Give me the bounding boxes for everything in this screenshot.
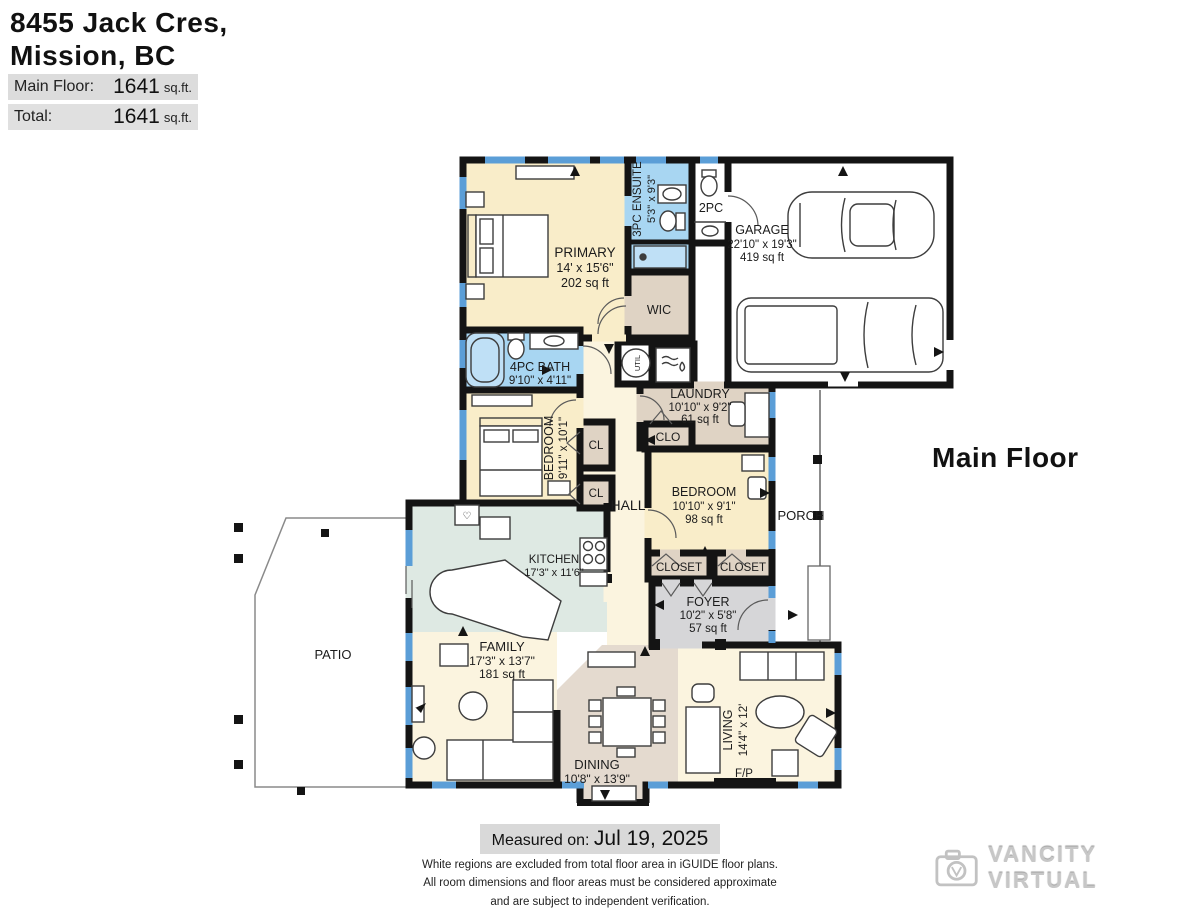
washer-icon — [656, 348, 690, 382]
coffee-table-icon — [756, 696, 804, 728]
svg-text:17'3" x 11'6": 17'3" x 11'6" — [524, 567, 584, 579]
armchair-icon — [772, 750, 798, 776]
disclaimer-line: and are subject to independent verificat… — [0, 893, 1200, 911]
svg-text:57 sq ft: 57 sq ft — [689, 623, 728, 635]
label-clo: CLO — [656, 430, 681, 444]
sofa-living-icon — [740, 652, 824, 680]
side-table-icon — [548, 481, 570, 495]
measured-date: Jul 19, 2025 — [594, 827, 708, 850]
svg-text:10'2" x 5'8": 10'2" x 5'8" — [680, 610, 737, 622]
svg-text:181 sq ft: 181 sq ft — [479, 667, 526, 681]
label-primary: PRIMARY — [554, 245, 615, 260]
svg-text:9'10" x 4'11": 9'10" x 4'11" — [509, 375, 571, 387]
floorplan-page: 8455 Jack Cres, Mission, BC Main Floor: … — [0, 0, 1200, 919]
svg-text:10'10" x 9'2": 10'10" x 9'2" — [668, 402, 731, 414]
svg-text:10'10" x 9'1": 10'10" x 9'1" — [672, 501, 735, 513]
label-bath4pc: 4PC BATH — [510, 360, 570, 374]
label-bedroom1: BEDROOM — [542, 416, 556, 481]
label-powder: 2PC — [699, 201, 723, 215]
label-closet1: CLOSET — [656, 562, 702, 574]
svg-text:419 sq ft: 419 sq ft — [740, 252, 785, 264]
svg-text:202 sq ft: 202 sq ft — [561, 276, 609, 290]
label-family: FAMILY — [479, 639, 525, 654]
console-icon — [412, 686, 424, 722]
label-cl2: CL — [589, 488, 604, 500]
bed-primary-icon — [468, 215, 548, 277]
bed-bedroom1-icon — [480, 418, 542, 496]
laundry-counter-icon — [745, 393, 769, 437]
car-icon — [788, 192, 934, 258]
label-cl1: CL — [589, 440, 604, 452]
loveseat-icon — [686, 707, 720, 773]
dresser-icon — [516, 166, 574, 179]
svg-text:22'10" x 19'3": 22'10" x 19'3" — [727, 239, 796, 251]
nightstand-icon — [466, 192, 484, 207]
round-table-icon — [459, 692, 487, 720]
dresser-icon — [472, 395, 532, 406]
label-bedroom2: BEDROOM — [672, 485, 737, 499]
svg-text:98 sq ft: 98 sq ft — [685, 514, 724, 526]
label-dining: DINING — [574, 757, 620, 772]
label-foyer: FOYER — [686, 595, 729, 609]
svg-text:9'11" x 10'1": 9'11" x 10'1" — [558, 417, 570, 479]
svg-text:17'3" x 13'7": 17'3" x 13'7" — [469, 654, 535, 668]
nightstand-icon — [466, 284, 484, 299]
label-util: UTIL — [633, 355, 642, 371]
label-garage: GARAGE — [735, 223, 789, 237]
camera-icon — [935, 848, 978, 888]
label-kitchen: KITCHEN — [529, 554, 579, 566]
ottoman-icon — [692, 684, 714, 702]
sideboard-icon — [588, 652, 635, 667]
svg-text:♡: ♡ — [463, 511, 472, 522]
porch-steps — [808, 566, 830, 640]
nightstand-icon — [742, 455, 764, 471]
label-patio: PATIO — [314, 647, 351, 662]
watermark-text: VANCITY VIRTUAL — [988, 842, 1200, 894]
label-fireplace: F/P — [735, 768, 753, 780]
svg-text:10'8" x 13'9": 10'8" x 13'9" — [564, 772, 630, 786]
label-living: LIVING — [721, 710, 735, 751]
round-table-icon — [413, 737, 435, 759]
measured-label: Measured on: — [492, 832, 590, 849]
armchair-icon — [440, 644, 468, 666]
label-hall: HALL — [610, 497, 645, 513]
entry-bench-icon — [592, 786, 636, 801]
label-wic: WIC — [647, 303, 671, 317]
floorplan-drawing: ♡ — [0, 0, 1200, 919]
svg-text:5'3" x 9'3": 5'3" x 9'3" — [646, 175, 658, 223]
watermark: VANCITY VIRTUAL — [935, 842, 1200, 894]
label-ensuite: 3PC ENSUITE — [632, 161, 644, 237]
label-porch: PORCH — [778, 508, 825, 523]
label-laundry: LAUNDRY — [670, 387, 730, 401]
label-closet2: CLOSET — [720, 562, 766, 574]
car-icon — [737, 298, 943, 372]
svg-text:14'4" x 12': 14'4" x 12' — [738, 704, 750, 757]
svg-text:14' x 15'6": 14' x 15'6" — [556, 261, 613, 275]
svg-text:61 sq ft: 61 sq ft — [681, 414, 720, 426]
